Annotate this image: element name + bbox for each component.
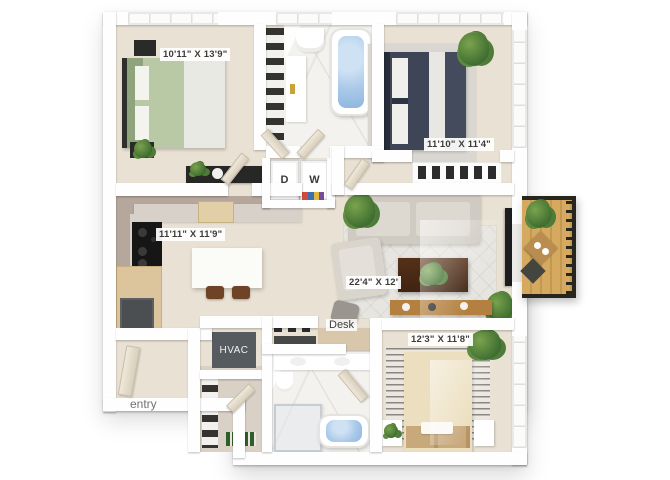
- wall: [233, 452, 527, 465]
- patio-plates: [534, 242, 541, 249]
- plant: [526, 200, 552, 228]
- wall: [103, 12, 116, 412]
- toilet: [276, 372, 293, 392]
- kitchen-island: [192, 248, 262, 288]
- window: [128, 12, 218, 25]
- double-vanity: [274, 354, 370, 370]
- shoe-shelf: [418, 166, 496, 179]
- wall: [332, 146, 344, 195]
- wall: [200, 316, 318, 328]
- window: [512, 30, 527, 148]
- plant: [458, 32, 490, 66]
- console-decor: [402, 303, 410, 311]
- linen-closet-shelves: [266, 28, 284, 146]
- refrigerator: [120, 298, 154, 330]
- wall: [500, 150, 514, 162]
- plant: [384, 424, 398, 438]
- wall: [262, 316, 272, 452]
- bar-stool: [232, 286, 250, 299]
- wall: [116, 183, 228, 196]
- nightstand: [134, 40, 156, 56]
- washer-label: W: [309, 174, 319, 186]
- dimension-label-living: 22'4" X 12': [346, 276, 401, 289]
- entry-label: entry: [130, 397, 157, 411]
- wall: [372, 150, 412, 162]
- window: [396, 12, 504, 25]
- hvac-label: HVAC: [219, 345, 248, 356]
- wall: [262, 200, 335, 208]
- plant: [468, 330, 502, 360]
- wall: [188, 328, 200, 452]
- vanity: [286, 56, 306, 122]
- faucet: [290, 84, 295, 94]
- wall: [372, 24, 384, 162]
- plant: [134, 140, 152, 158]
- sink: [290, 357, 306, 366]
- wall: [370, 318, 382, 452]
- plant: [190, 162, 206, 176]
- window: [512, 336, 527, 448]
- bathtub-water: [326, 420, 362, 442]
- wall: [382, 318, 514, 330]
- bathtub-water: [338, 36, 364, 108]
- bed: [378, 52, 466, 150]
- wall: [252, 183, 302, 196]
- floorplan: D W HVAC: [0, 0, 670, 480]
- wall: [200, 370, 262, 379]
- plant: [344, 194, 376, 228]
- bar-stool: [206, 286, 224, 299]
- wall: [262, 344, 346, 354]
- wall: [332, 183, 514, 195]
- hvac-unit: HVAC: [212, 332, 256, 368]
- dimension-label-bedroom2: 11'10" X 11'4": [424, 138, 494, 151]
- dimension-label-kitchen: 11'11" X 11'9": [156, 228, 225, 241]
- desk-label: Desk: [326, 319, 357, 331]
- plant: [420, 263, 444, 285]
- kitchen-sink: [198, 201, 234, 223]
- bed: [404, 352, 472, 458]
- dimension-label-bedroom1: 10'11" X 13'9": [160, 48, 230, 61]
- armchair: [330, 237, 388, 301]
- dimension-label-bedroom3: 12'3" X 11'8": [408, 333, 473, 346]
- toilet: [296, 28, 324, 52]
- wall: [103, 398, 245, 411]
- window: [276, 12, 332, 25]
- shower: [274, 404, 322, 452]
- nightstand: [474, 420, 494, 446]
- bed: [122, 58, 225, 148]
